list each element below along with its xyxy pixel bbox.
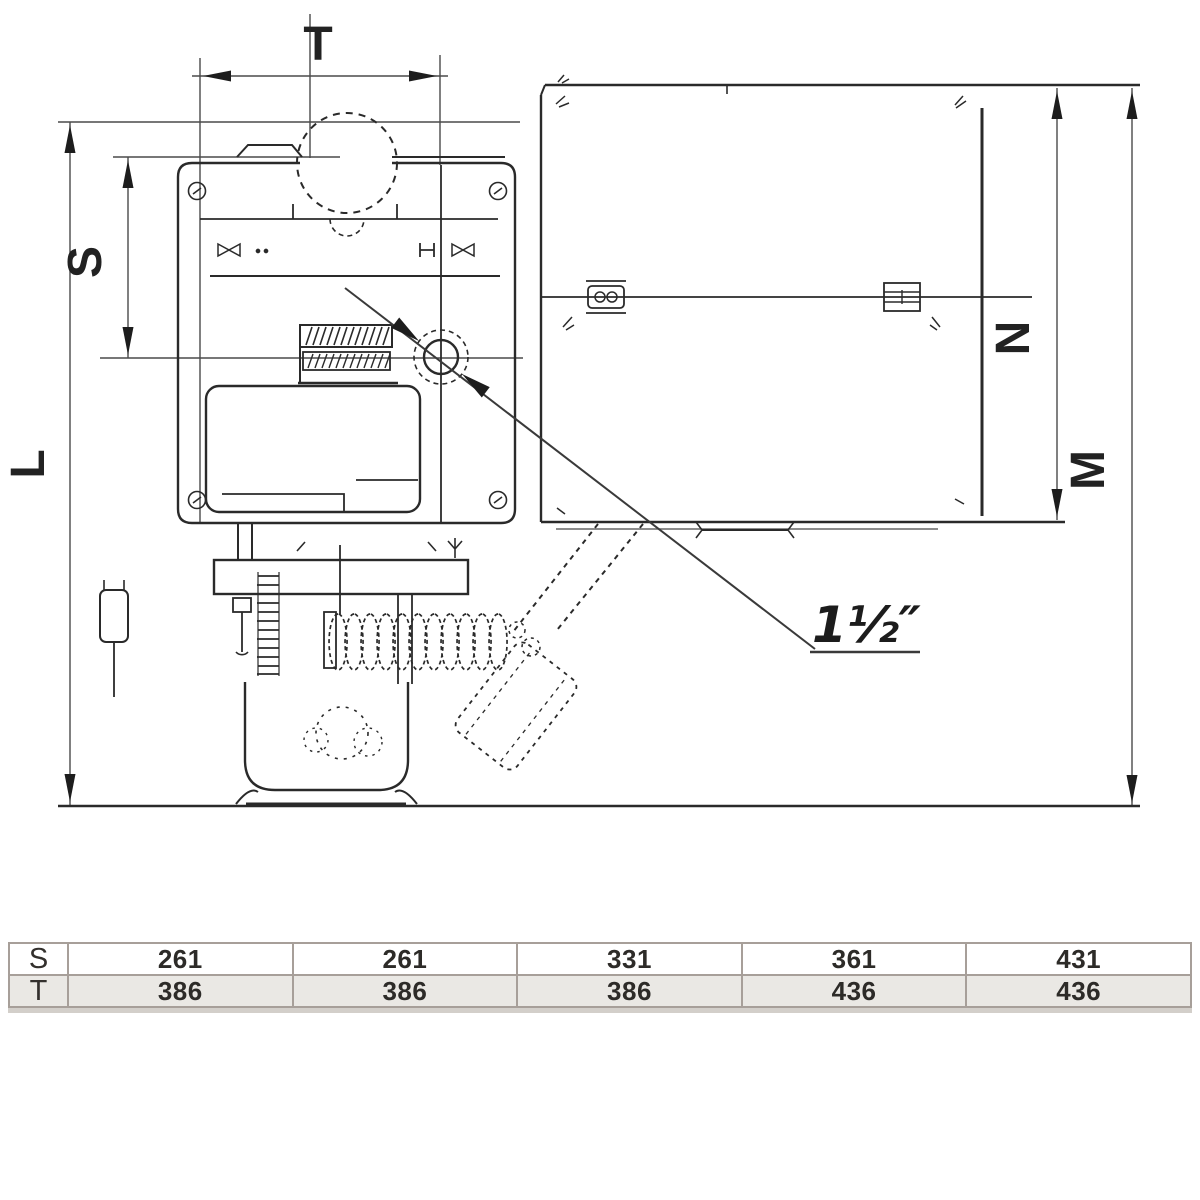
hatch-upper — [306, 327, 389, 345]
arrow-l-down — [65, 774, 76, 802]
row-label-t: T — [10, 976, 67, 1006]
top-handle — [237, 145, 302, 157]
arrow-m-down — [1127, 775, 1138, 803]
tick-mark — [955, 96, 966, 108]
row-label-s: S — [10, 944, 67, 974]
slab-right-bracket — [448, 538, 462, 558]
table-cell-s-1: 261 — [69, 944, 292, 974]
blower-hub-arc — [330, 219, 364, 236]
drain-valve — [233, 598, 251, 655]
valve-symbol-left — [218, 244, 240, 256]
swirl-small-right — [354, 728, 382, 756]
arrow-t-right — [409, 71, 437, 82]
dim-label-t: T — [303, 18, 332, 71]
tick-mark — [558, 75, 569, 83]
corner-screws — [189, 183, 507, 509]
dashed-pipe — [452, 524, 643, 774]
table-cell-t-3: 386 — [518, 976, 741, 1006]
dim-label-l: L — [2, 449, 55, 478]
table-cell-t-5: 436 — [967, 976, 1190, 1006]
arrow-n-up — [1052, 91, 1063, 119]
dim-label-s: S — [59, 246, 112, 278]
table-cell-s-2: 261 — [294, 944, 517, 974]
tick-mark — [955, 499, 964, 504]
slab-ticks — [297, 542, 436, 551]
tick-mark — [556, 96, 569, 107]
corrugations — [329, 614, 507, 670]
page: T S L N M — [0, 0, 1200, 1200]
left-conduit — [100, 580, 128, 697]
tick-mark — [563, 317, 574, 330]
threads — [257, 576, 279, 674]
arrow-l-up — [65, 125, 76, 153]
control-box-detail — [222, 480, 418, 512]
technical-drawing: T S L N M — [0, 0, 1200, 1200]
pipe-size-annotation: 1½″ — [812, 596, 922, 654]
table-cell-t-4: 436 — [743, 976, 966, 1006]
dashed-nut — [452, 638, 581, 773]
rear-bottom-fitting — [696, 522, 794, 538]
table-cell-t-1: 386 — [69, 976, 292, 1006]
dim-label-m: M — [1062, 450, 1115, 490]
h-symbol — [420, 243, 434, 257]
arrow-s-down — [123, 327, 134, 355]
rear-view — [541, 75, 1140, 538]
blower-circle — [297, 113, 397, 213]
arrow-s-up — [123, 160, 134, 188]
valve-symbol-right — [452, 244, 474, 256]
under-body-assembly — [100, 523, 643, 804]
tick-mark — [557, 508, 565, 514]
dimension-table-grid: S 261 261 331 361 431 T 386 386 386 436 … — [10, 944, 1190, 1006]
hatch-lower — [308, 354, 390, 368]
side-view — [178, 113, 515, 523]
table-cell-t-2: 386 — [294, 976, 517, 1006]
leader-arrow-lower — [458, 369, 490, 398]
arrow-m-up — [1127, 91, 1138, 119]
panel-symbols — [218, 243, 474, 257]
table-cell-s-3: 331 — [518, 944, 741, 974]
siphon-cup — [236, 682, 417, 804]
dimension-lines — [58, 14, 1132, 805]
flex-hose — [324, 612, 540, 670]
mounting-slab — [214, 560, 468, 594]
dim-label-n: N — [987, 321, 1040, 356]
swirl-large — [316, 707, 368, 759]
dimension-table: S 261 261 331 361 431 T 386 386 386 436 … — [8, 942, 1192, 1013]
flue-stub — [298, 325, 398, 383]
table-cell-s-5: 431 — [967, 944, 1190, 974]
arrow-t-left — [203, 71, 231, 82]
dimension-arrowheads — [65, 71, 1138, 804]
threaded-rod — [257, 572, 279, 676]
arrow-n-down — [1052, 489, 1063, 517]
table-cell-s-4: 361 — [743, 944, 966, 974]
tick-mark — [930, 317, 940, 330]
